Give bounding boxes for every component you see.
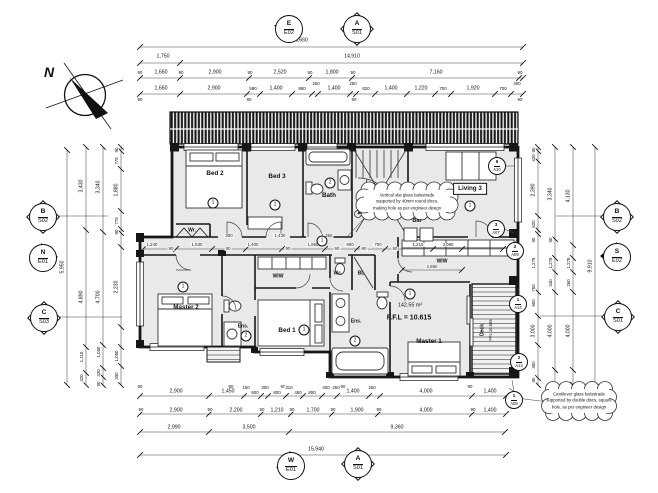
room-label: Wc. bbox=[334, 272, 343, 277]
dim-label: 700 bbox=[438, 87, 447, 91]
dim-label: 1,900 bbox=[350, 408, 365, 413]
dim-label: 390 bbox=[115, 371, 119, 380]
dim-label: 90 bbox=[137, 71, 144, 75]
room-label: Bed 3 bbox=[268, 174, 285, 180]
circled-number: 2 bbox=[350, 336, 361, 347]
dim-label: 420 bbox=[80, 373, 84, 382]
dim-label: 250 bbox=[331, 386, 340, 390]
circled-number: 1 bbox=[299, 325, 310, 336]
dim-label: 1,530 bbox=[191, 243, 204, 247]
dim-label: 1,220 bbox=[414, 86, 429, 91]
ref-tag-sheet: A07 bbox=[492, 230, 499, 235]
dim-label: 1,050 bbox=[97, 346, 101, 359]
dim-label: 2,230 bbox=[114, 280, 119, 295]
dim-label: 1,278 bbox=[532, 257, 536, 270]
dim-label: 90 bbox=[225, 247, 232, 251]
dim-label: 300 bbox=[224, 234, 233, 238]
dim-label: 15,940 bbox=[307, 447, 325, 452]
ref-tag: 1A14 bbox=[509, 295, 527, 313]
dim-label: 90 bbox=[351, 98, 358, 102]
marker-code: C bbox=[613, 309, 624, 318]
ref-tag: 1A08 bbox=[505, 391, 523, 409]
dim-label: 90 bbox=[259, 408, 266, 412]
dim-label: 1,278 bbox=[567, 257, 571, 270]
dim-label: 90 bbox=[97, 381, 101, 388]
dim-label: 90 bbox=[532, 377, 536, 384]
marker-code: A bbox=[352, 21, 363, 30]
marker-sheet: S02 bbox=[612, 218, 622, 225]
dim-label: 330 bbox=[97, 368, 101, 377]
dim-label: 1,750 bbox=[156, 54, 171, 59]
room-label: Bed 2 bbox=[206, 171, 223, 177]
marker-circle: SE02 bbox=[603, 243, 631, 271]
marker-code: B bbox=[612, 209, 623, 218]
dim-label: 7,160 bbox=[429, 70, 444, 75]
circled-number: 1 bbox=[405, 289, 416, 300]
dim-label: 90 bbox=[549, 237, 553, 244]
dim-label: 880 bbox=[297, 87, 306, 91]
marker-sheet: E01 bbox=[38, 259, 48, 266]
ref-tag-sheet: A14 bbox=[514, 305, 521, 310]
dim-label: 2,520 bbox=[273, 70, 288, 75]
dim-label: 4,000 bbox=[419, 389, 434, 394]
dim-label: 90 bbox=[137, 385, 144, 389]
dim-label: 1,240 bbox=[146, 243, 159, 247]
revision-note: Vertical slat glass balustradesupported … bbox=[373, 192, 441, 211]
dim-label: 4,000 bbox=[566, 324, 571, 339]
dim-label: 2,900 bbox=[169, 389, 184, 394]
dim-label: 1,050 bbox=[115, 350, 119, 363]
circled-number: 1 bbox=[317, 236, 328, 247]
dim-label: 2,900 bbox=[169, 408, 184, 413]
circled-number: 2 bbox=[325, 178, 336, 189]
dim-label: 1,110 bbox=[80, 351, 84, 364]
room-label: Bed 1 bbox=[278, 328, 295, 334]
ref-tag-number: 2 bbox=[516, 356, 523, 363]
dim-label: 800 bbox=[307, 391, 316, 395]
dim-label: 1,400 bbox=[483, 408, 498, 413]
room-label: Deck bbox=[481, 324, 486, 336]
dim-label: 5,950 bbox=[60, 260, 65, 275]
marker-sheet: E02 bbox=[284, 30, 294, 37]
floor-plan-sheet: 16,6601,75014,910901,660902,900902,52090… bbox=[0, 0, 658, 493]
dim-label: 400 bbox=[321, 386, 330, 390]
circled-number: 1 bbox=[178, 282, 189, 293]
dim-label: 90 bbox=[247, 71, 254, 75]
note-line: supported by 40mm round discs, bbox=[373, 199, 441, 205]
room-label: F.F.L = 10.615 bbox=[387, 315, 431, 322]
ref-tag: 3A07 bbox=[487, 220, 505, 238]
dim-label: 90 bbox=[467, 385, 474, 389]
dim-label: 300 bbox=[532, 360, 536, 369]
dim-label: 2,900 bbox=[207, 86, 222, 91]
dim-label: 90 bbox=[115, 147, 119, 154]
room-label: Ens. bbox=[238, 325, 249, 330]
dim-label: 2,990 bbox=[167, 425, 182, 430]
dim-label: 3,000 bbox=[531, 324, 536, 339]
marker-circle: NE01 bbox=[29, 244, 57, 272]
marker-sheet: S03 bbox=[39, 319, 49, 326]
dim-label: 250 bbox=[367, 386, 376, 390]
room-label: WIW bbox=[273, 275, 284, 280]
circled-number: 1 bbox=[208, 198, 219, 209]
dim-label: 310 bbox=[284, 386, 293, 390]
dim-label: 1,400 bbox=[384, 86, 399, 91]
dim-label: 1,800 bbox=[325, 70, 340, 75]
dim-label: 90 bbox=[376, 408, 383, 412]
ref-tag-sheet: A09 bbox=[511, 252, 518, 257]
dim-label: 400 bbox=[512, 82, 521, 86]
dim-label: 3,340 bbox=[548, 187, 553, 202]
dim-label: 4,130 bbox=[566, 189, 571, 204]
dim-label: 775 bbox=[115, 216, 119, 225]
dim-label: 1,660 bbox=[154, 70, 169, 75]
revision-note: Cantilever glass balustradesupported by … bbox=[546, 391, 611, 410]
marker-code: N bbox=[38, 250, 49, 259]
ref-tag-sheet: A13 bbox=[515, 363, 522, 368]
dim-label: 90 bbox=[517, 98, 524, 102]
dim-label: 1,430 bbox=[274, 234, 287, 238]
room-label: Bath bbox=[322, 193, 336, 199]
dim-label: 9,910 bbox=[588, 259, 593, 274]
marker-sheet: S01 bbox=[353, 465, 363, 472]
dim-label: 90 bbox=[207, 408, 214, 412]
dim-label: 90 bbox=[350, 71, 357, 75]
dim-label: 1,400 bbox=[483, 389, 498, 394]
dim-label: 90 bbox=[137, 98, 144, 102]
marker-code: B bbox=[38, 209, 49, 218]
dim-label: 1,700 bbox=[306, 408, 321, 413]
circled-number: 2 bbox=[241, 331, 252, 342]
dim-label: 90 bbox=[115, 229, 119, 236]
dim-label: 800 bbox=[272, 391, 281, 395]
ref-tag-number: 1 bbox=[515, 298, 522, 305]
room-label: FFL 10.565 bbox=[489, 319, 493, 340]
dim-label: 250 bbox=[348, 82, 357, 86]
marker-sheet: S01 bbox=[352, 30, 362, 37]
dim-label: 150 bbox=[241, 386, 250, 390]
ref-tag: 2A13 bbox=[510, 353, 528, 371]
marker-code: S bbox=[612, 249, 622, 258]
dim-label: 4,000 bbox=[419, 408, 434, 413]
dim-label: 420 bbox=[532, 153, 536, 162]
dim-label: 90 bbox=[307, 71, 314, 75]
dim-label: 3,340 bbox=[96, 180, 101, 195]
dim-label: 1,880 bbox=[114, 183, 119, 198]
dim-label: 1,400 bbox=[269, 86, 284, 91]
dim-label: 4,890 bbox=[79, 290, 84, 305]
dim-label: 90 bbox=[285, 247, 292, 251]
dim-label: 4,000 bbox=[548, 324, 553, 339]
dim-label: 500 bbox=[532, 298, 536, 307]
dim-label: 90 bbox=[361, 247, 368, 251]
dim-label: 775 bbox=[115, 156, 119, 165]
dim-label: 1,920 bbox=[466, 86, 481, 91]
dim-label: 820 bbox=[361, 87, 370, 91]
dim-label: 90 bbox=[138, 408, 145, 412]
dim-label: 3,500 bbox=[242, 425, 257, 430]
dim-label: 1,450 bbox=[221, 389, 236, 394]
ref-tag: 2A09 bbox=[506, 242, 524, 260]
dim-label: 14,910 bbox=[343, 54, 361, 59]
ref-tag: 6A10 bbox=[488, 157, 506, 175]
dim-label: 300 bbox=[260, 386, 269, 390]
ref-tag-number: 6 bbox=[494, 160, 501, 167]
marker-circle: AS01 bbox=[344, 450, 372, 478]
dim-label: 1,400 bbox=[247, 243, 260, 247]
dim-label: 450 bbox=[293, 391, 302, 395]
ref-tag-number: 3 bbox=[493, 223, 500, 230]
marker-sheet: E02 bbox=[612, 258, 622, 265]
dim-label: 90 bbox=[334, 247, 341, 251]
dim-label: 1,210 bbox=[270, 408, 285, 413]
dim-label: 1,400 bbox=[327, 86, 342, 91]
dim-label: 90 bbox=[470, 408, 477, 412]
ref-tag-number: 2 bbox=[512, 245, 519, 252]
note-line: hole, as per engineer design bbox=[546, 404, 611, 410]
dim-label: 1,210 bbox=[412, 243, 425, 247]
ref-tag-number: 1 bbox=[511, 394, 518, 401]
dim-label: 340 bbox=[549, 278, 553, 287]
dim-label: 90 bbox=[246, 98, 253, 102]
dim-label: 4,700 bbox=[96, 290, 101, 305]
marker-sheet: S01 bbox=[613, 318, 623, 325]
room-label: BL bbox=[358, 272, 365, 277]
dim-label: 1,660 bbox=[154, 86, 169, 91]
dim-label: 90 bbox=[178, 71, 185, 75]
marker-code: W bbox=[285, 458, 297, 467]
ref-tag-sheet: A08 bbox=[510, 401, 517, 406]
dim-label: 90 bbox=[392, 247, 399, 251]
dim-label: 90 bbox=[168, 247, 175, 251]
dim-label: 600 bbox=[250, 391, 259, 395]
dim-label: 90 bbox=[532, 237, 536, 244]
dim-label: 2,200 bbox=[229, 408, 244, 413]
dim-label: 3,430 bbox=[79, 179, 84, 194]
marker-sheet: S02 bbox=[38, 218, 48, 225]
dim-label: 2,390 bbox=[531, 183, 536, 198]
marker-circle: BS02 bbox=[29, 203, 57, 231]
dim-label: 1,400 bbox=[346, 389, 361, 394]
marker-circle: EE02 bbox=[275, 15, 303, 43]
room-label: Bar bbox=[412, 219, 421, 225]
dim-label: 90 bbox=[289, 408, 296, 412]
circled-number: 1 bbox=[465, 201, 476, 212]
dim-label: 2,860 bbox=[426, 265, 439, 269]
room-label: N bbox=[44, 65, 54, 79]
dim-label: 580 bbox=[248, 87, 257, 91]
circled-number: 1 bbox=[270, 200, 281, 211]
dim-label: 9,360 bbox=[390, 425, 405, 430]
marker-circle: CS03 bbox=[30, 304, 58, 332]
dim-label: 2,900 bbox=[208, 70, 223, 75]
note-line: supported by double discs, square bbox=[546, 398, 611, 404]
marker-circle: BS02 bbox=[603, 203, 631, 231]
marker-sheet: E01 bbox=[286, 467, 296, 474]
dim-label: 90 bbox=[330, 408, 337, 412]
dim-label: 90 bbox=[517, 71, 524, 75]
dim-label: 760 bbox=[532, 283, 536, 292]
marker-code: A bbox=[353, 456, 364, 465]
marker-code: E bbox=[284, 21, 294, 30]
dim-label: 3,090 bbox=[442, 243, 455, 247]
marker-circle: AS01 bbox=[343, 15, 371, 43]
dim-label: 260 bbox=[567, 278, 571, 287]
ref-tag-sheet: A10 bbox=[493, 167, 500, 172]
dim-label: 1,278 bbox=[549, 257, 553, 270]
dim-label: 250 bbox=[311, 82, 320, 86]
room-label: 142.55 m² bbox=[398, 303, 422, 308]
note-line: making hole as per engineer design bbox=[373, 205, 441, 211]
dim-label: 900 bbox=[345, 243, 354, 247]
room-label: Ens. bbox=[351, 320, 362, 325]
dim-label: 620 bbox=[532, 219, 536, 228]
room-label: Living 3 bbox=[453, 183, 487, 195]
dim-label: 700 bbox=[373, 243, 382, 247]
marker-code: C bbox=[39, 310, 50, 319]
room-label: Master 2 bbox=[173, 305, 199, 311]
marker-circle: CS01 bbox=[604, 303, 632, 331]
room-label: Wr. bbox=[188, 229, 196, 234]
annotation-overlay: 16,6601,75014,910901,660902,900902,52090… bbox=[0, 0, 658, 493]
marker-circle: WE01 bbox=[277, 452, 305, 480]
dim-label: 700 bbox=[498, 87, 507, 91]
room-label: WIW bbox=[437, 260, 448, 265]
room-label: Master 1 bbox=[416, 339, 442, 345]
